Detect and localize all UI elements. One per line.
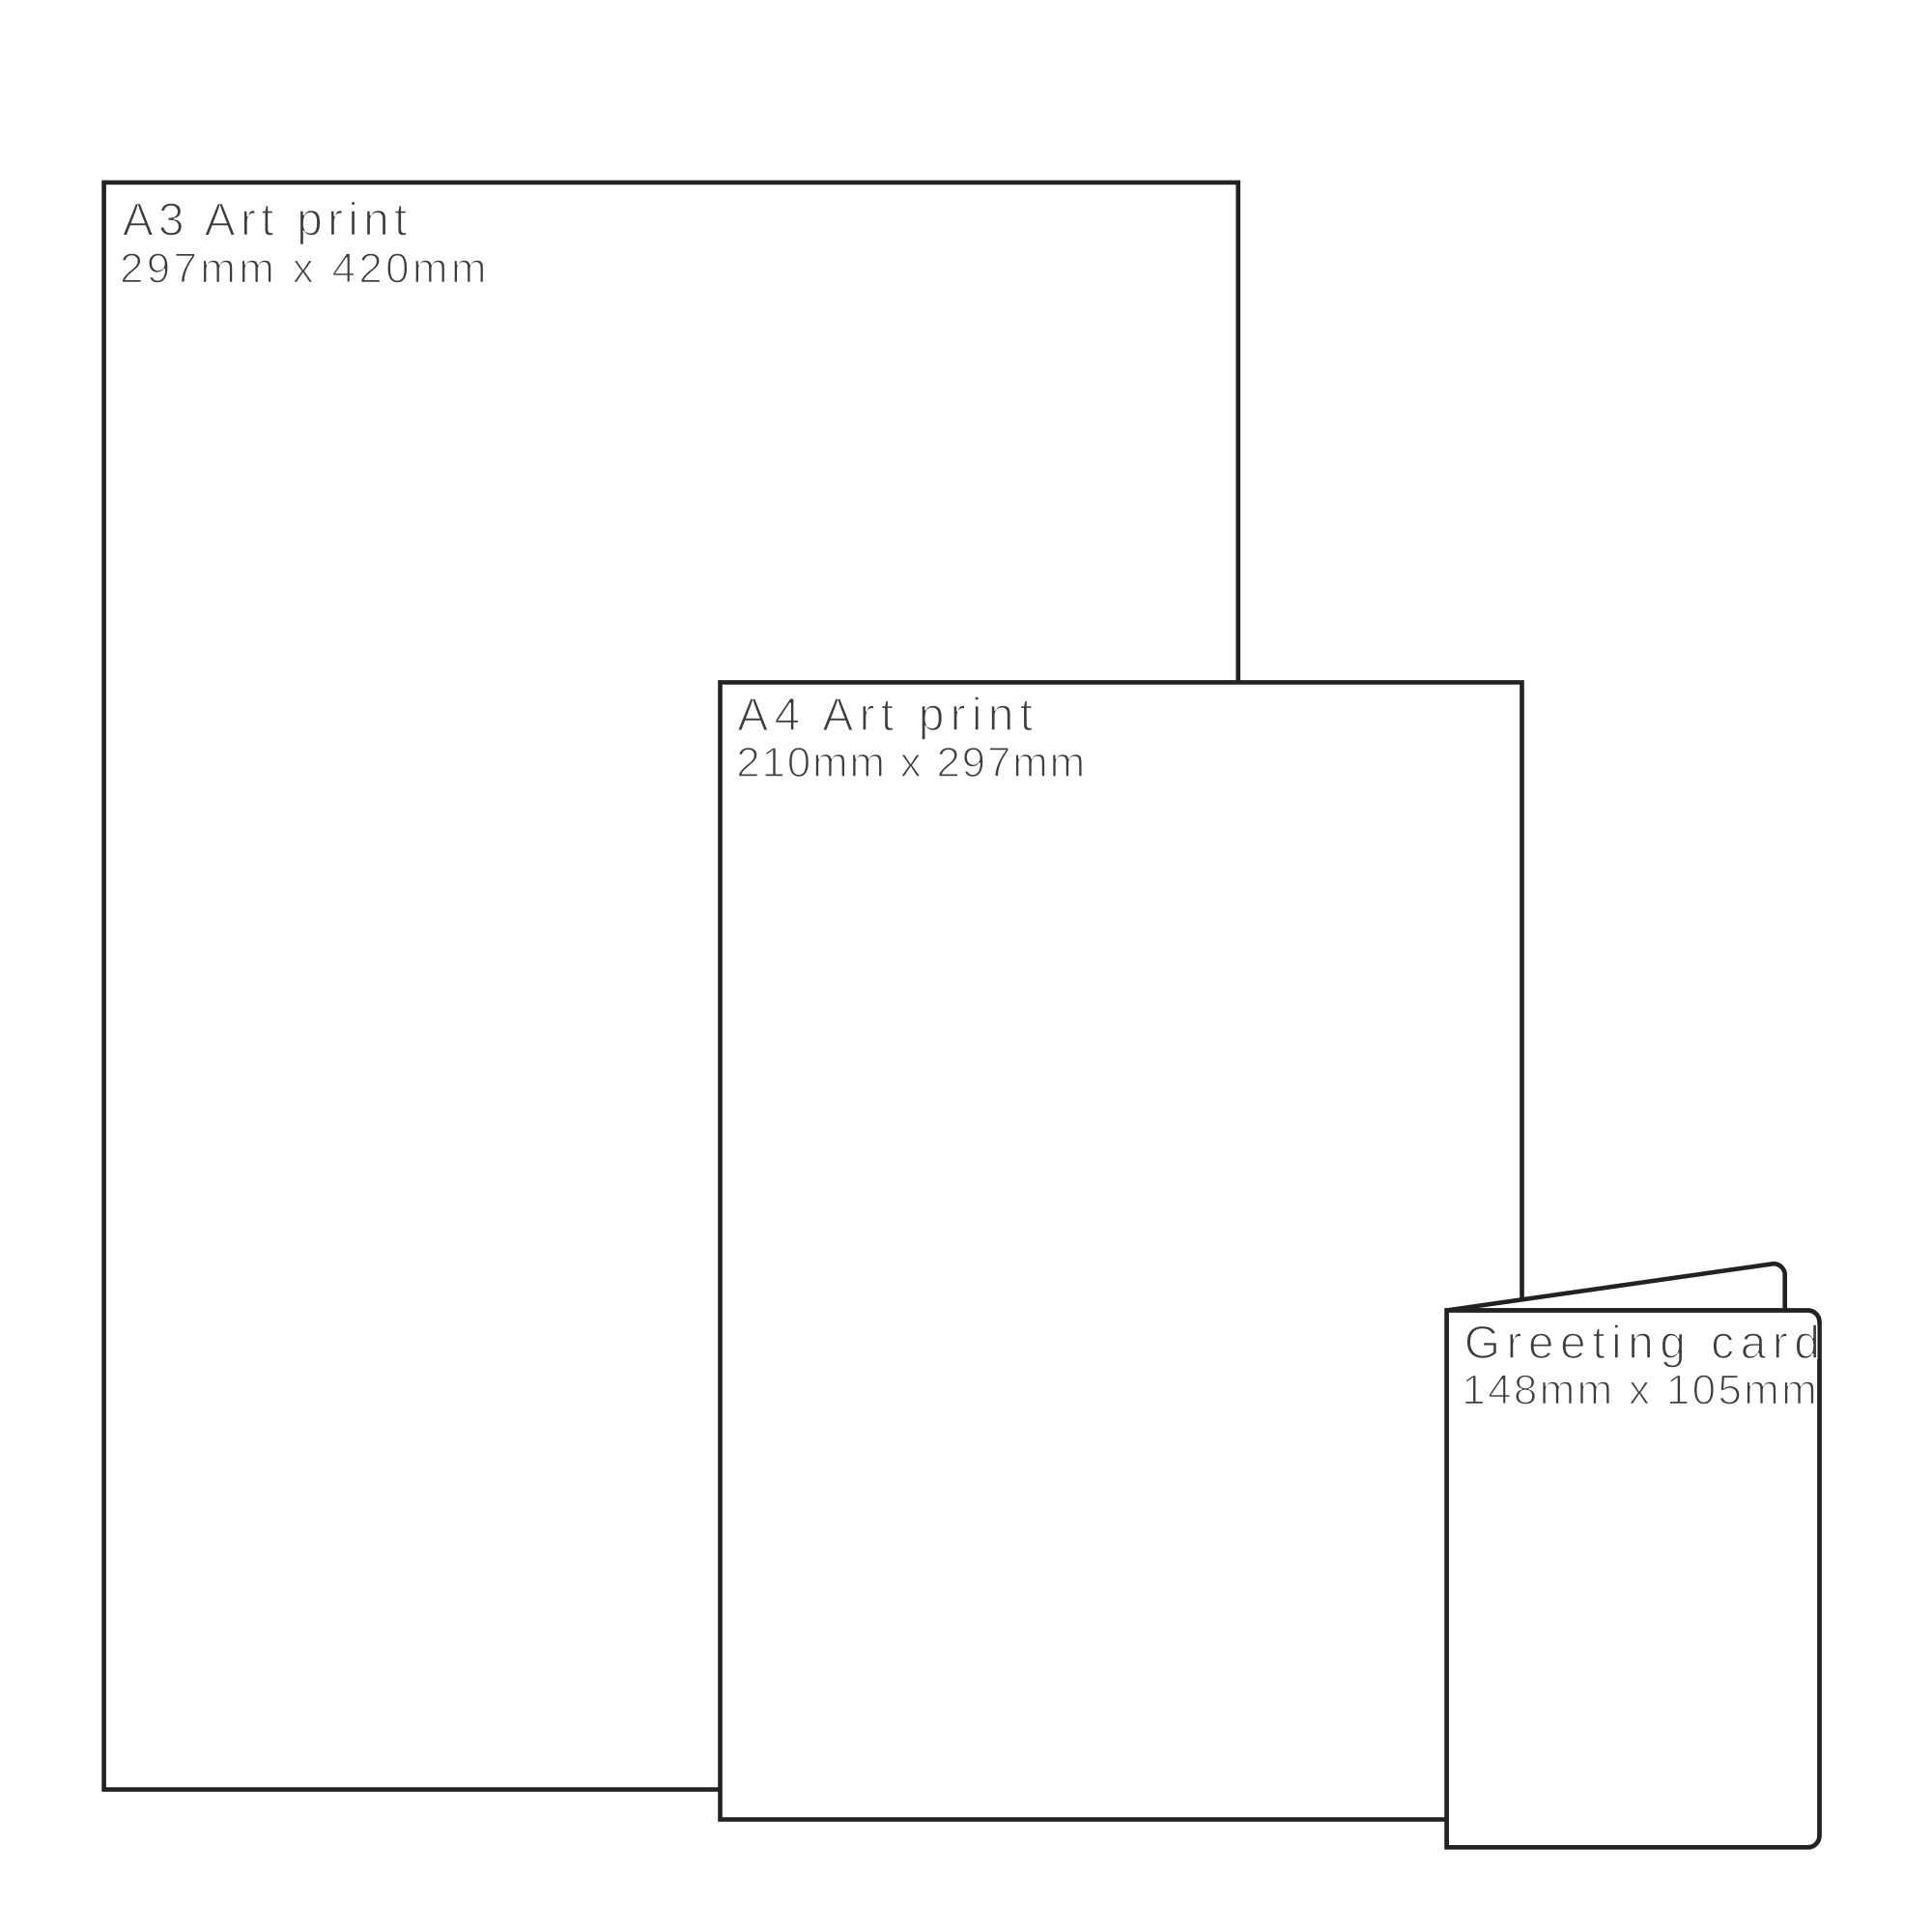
svg-text:Greeting card: Greeting card [1464,1318,1827,1369]
svg-text:148mm x 105mm: 148mm x 105mm [1462,1367,1819,1414]
svg-text:210mm x 297mm: 210mm x 297mm [736,739,1087,786]
svg-text:A3 Art print: A3 Art print [123,195,412,246]
svg-text:297mm x 420mm: 297mm x 420mm [120,245,490,293]
svg-text:A4 Art print: A4 Art print [737,690,1038,741]
